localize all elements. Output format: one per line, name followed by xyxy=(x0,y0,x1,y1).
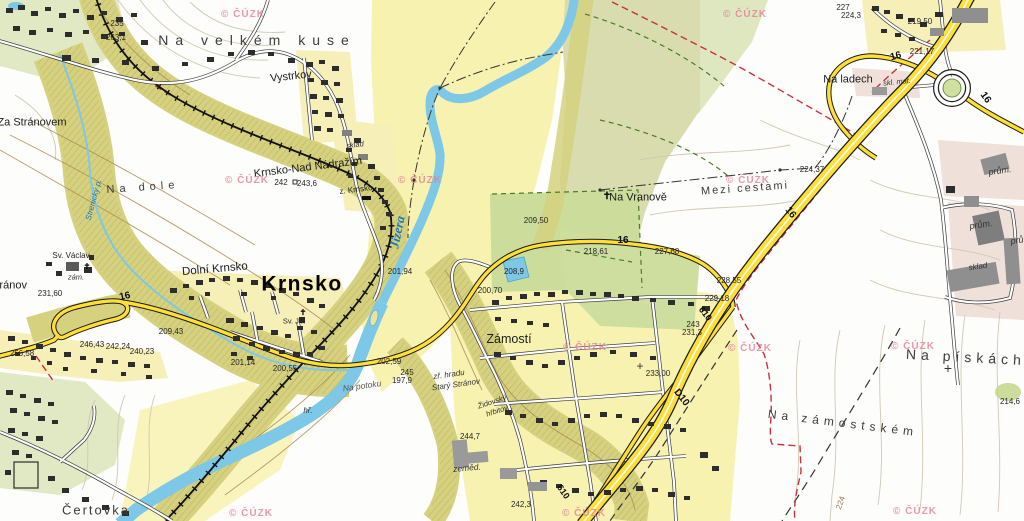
building xyxy=(8,336,15,341)
building xyxy=(354,138,361,143)
building xyxy=(520,414,526,418)
building xyxy=(241,322,248,327)
building xyxy=(288,58,295,63)
building xyxy=(189,296,194,300)
building xyxy=(293,292,299,296)
building xyxy=(668,300,675,305)
building xyxy=(548,292,555,297)
building xyxy=(600,412,607,417)
building xyxy=(241,292,247,296)
building xyxy=(319,304,325,308)
building xyxy=(712,466,719,471)
building xyxy=(881,29,887,33)
building xyxy=(636,486,643,491)
building xyxy=(909,37,915,41)
building xyxy=(572,488,579,493)
building xyxy=(688,302,694,306)
building xyxy=(47,28,53,32)
building xyxy=(616,414,622,418)
building xyxy=(122,511,129,516)
building xyxy=(552,422,558,426)
building xyxy=(462,451,489,464)
building xyxy=(652,488,658,492)
building xyxy=(128,362,135,367)
building xyxy=(510,356,516,360)
building xyxy=(584,414,590,418)
building xyxy=(542,364,548,368)
building xyxy=(604,292,611,297)
building xyxy=(268,52,274,56)
building xyxy=(494,352,501,357)
building xyxy=(648,422,654,426)
building xyxy=(520,294,527,299)
building xyxy=(36,344,43,349)
building xyxy=(352,162,357,166)
building xyxy=(325,112,332,117)
building xyxy=(6,390,13,395)
building xyxy=(526,360,533,365)
building xyxy=(38,416,45,421)
building xyxy=(590,352,597,357)
building xyxy=(650,298,656,302)
building xyxy=(511,319,517,323)
building xyxy=(36,436,43,441)
building xyxy=(226,318,234,323)
building xyxy=(22,340,28,344)
building xyxy=(632,296,639,301)
building xyxy=(306,62,313,67)
building xyxy=(228,52,234,56)
building xyxy=(618,294,624,298)
building xyxy=(131,13,137,17)
building xyxy=(101,11,107,15)
building xyxy=(87,15,94,20)
building xyxy=(668,492,675,497)
topographic-map-canvas[interactable]: Na velkém kuseVystrkovZa StránovemKrnsko… xyxy=(0,0,1024,521)
building xyxy=(6,8,13,13)
building xyxy=(56,271,62,276)
building xyxy=(293,352,300,357)
building xyxy=(182,62,188,66)
building xyxy=(310,94,317,99)
building xyxy=(684,496,690,500)
building xyxy=(196,280,203,285)
building xyxy=(10,408,17,413)
building xyxy=(630,352,637,357)
building xyxy=(47,361,52,365)
building xyxy=(946,186,955,193)
building xyxy=(48,402,54,406)
building xyxy=(257,326,263,330)
building xyxy=(307,298,314,303)
building xyxy=(334,82,340,86)
building xyxy=(386,212,392,216)
building xyxy=(307,352,313,356)
building xyxy=(50,348,56,352)
building xyxy=(884,10,890,14)
building xyxy=(556,484,562,488)
building xyxy=(102,505,109,510)
building xyxy=(31,356,36,360)
building xyxy=(265,284,271,288)
building xyxy=(233,336,240,341)
building xyxy=(96,358,103,363)
building xyxy=(209,278,215,282)
building xyxy=(527,321,533,325)
building xyxy=(872,6,879,11)
building xyxy=(183,284,189,288)
building xyxy=(964,196,979,207)
building xyxy=(279,350,285,354)
building xyxy=(664,424,671,429)
building xyxy=(568,418,575,423)
building xyxy=(380,226,386,230)
building xyxy=(338,114,344,118)
building xyxy=(610,350,616,354)
building xyxy=(63,367,68,371)
building xyxy=(908,18,914,22)
building xyxy=(327,128,333,132)
building xyxy=(141,40,148,45)
building xyxy=(590,292,596,296)
building xyxy=(18,5,25,10)
building xyxy=(506,296,512,300)
building xyxy=(263,346,270,351)
building xyxy=(319,60,325,64)
building xyxy=(251,280,258,285)
building xyxy=(34,398,41,403)
building xyxy=(249,342,255,346)
building xyxy=(680,428,686,432)
building xyxy=(66,262,79,271)
building xyxy=(279,288,286,293)
building xyxy=(543,323,549,327)
building xyxy=(896,14,903,19)
building xyxy=(562,290,568,294)
building xyxy=(895,33,901,37)
building xyxy=(346,148,352,152)
building xyxy=(59,13,66,18)
building xyxy=(144,364,150,368)
building xyxy=(48,476,55,481)
building xyxy=(620,488,626,492)
building xyxy=(31,11,38,16)
building xyxy=(122,60,129,65)
building xyxy=(930,28,944,36)
building xyxy=(22,432,28,436)
building xyxy=(84,267,92,273)
building xyxy=(574,356,580,360)
building xyxy=(223,276,230,281)
building xyxy=(15,352,20,356)
building xyxy=(368,164,375,169)
building xyxy=(146,375,152,379)
building xyxy=(237,278,243,282)
building xyxy=(20,394,26,398)
building xyxy=(83,30,89,34)
building xyxy=(82,497,89,502)
building xyxy=(952,8,988,23)
building xyxy=(308,78,314,82)
building xyxy=(378,188,384,192)
building xyxy=(362,196,371,200)
building xyxy=(702,306,710,311)
building xyxy=(299,317,305,323)
building xyxy=(312,110,318,114)
building xyxy=(935,12,943,17)
building xyxy=(332,66,339,71)
building xyxy=(5,470,11,475)
building xyxy=(311,330,317,334)
building xyxy=(13,26,20,31)
building xyxy=(534,292,540,296)
building xyxy=(321,80,328,85)
building xyxy=(323,96,329,100)
building xyxy=(248,50,255,55)
building xyxy=(62,488,69,493)
building xyxy=(91,369,97,373)
building xyxy=(112,360,118,364)
building xyxy=(492,300,499,305)
building xyxy=(336,98,343,103)
building xyxy=(73,9,79,13)
building xyxy=(152,66,159,71)
building xyxy=(872,87,887,95)
building xyxy=(348,174,353,178)
building xyxy=(121,372,126,376)
building xyxy=(12,450,19,455)
building xyxy=(382,200,388,204)
building xyxy=(89,255,94,260)
building xyxy=(500,468,517,479)
building xyxy=(119,32,125,36)
building xyxy=(207,57,214,62)
building xyxy=(24,412,30,416)
building xyxy=(558,360,565,365)
building xyxy=(374,176,380,180)
building xyxy=(62,55,71,61)
building xyxy=(26,454,32,458)
building xyxy=(588,492,594,496)
building xyxy=(576,290,583,295)
building xyxy=(920,22,927,27)
building xyxy=(46,262,52,266)
building xyxy=(632,418,639,423)
building xyxy=(297,326,303,330)
building xyxy=(285,334,291,338)
map-base-layer xyxy=(0,0,1024,521)
building xyxy=(271,296,276,300)
building xyxy=(65,32,72,37)
building xyxy=(700,452,708,458)
building xyxy=(52,420,58,424)
building xyxy=(64,352,71,357)
swimming-pond xyxy=(503,257,529,282)
building xyxy=(101,34,108,39)
building xyxy=(231,352,237,356)
building xyxy=(29,30,36,35)
building xyxy=(319,346,325,350)
building xyxy=(170,288,177,293)
building xyxy=(205,292,210,296)
building xyxy=(528,482,547,491)
building xyxy=(314,126,321,131)
building xyxy=(650,356,656,360)
building xyxy=(604,490,611,495)
building xyxy=(271,330,278,335)
building xyxy=(45,7,51,11)
building xyxy=(92,58,99,63)
building xyxy=(247,356,253,360)
building xyxy=(358,154,368,160)
building xyxy=(342,130,352,136)
building xyxy=(80,356,86,360)
building xyxy=(495,317,501,321)
building xyxy=(116,17,123,22)
building xyxy=(505,410,512,415)
building xyxy=(536,418,543,423)
building xyxy=(8,428,15,433)
